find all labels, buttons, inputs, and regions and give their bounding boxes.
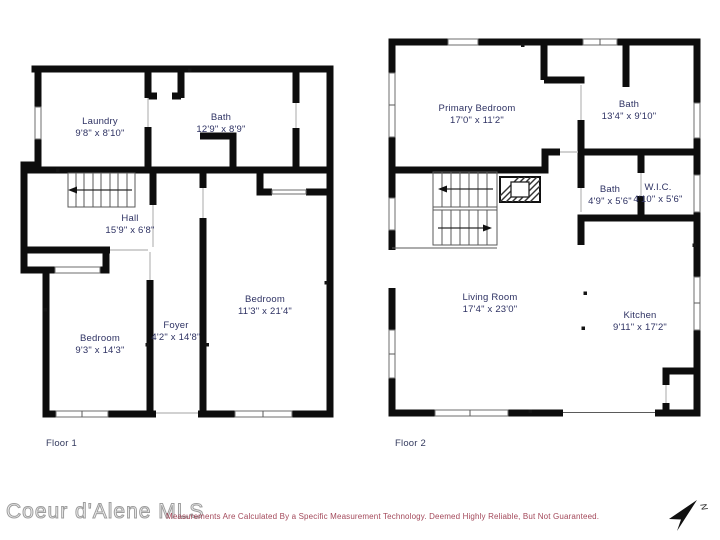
room-dims: 17'4" x 23'0" — [462, 304, 517, 316]
room-name: Bath — [196, 112, 245, 124]
floor2-plan — [389, 39, 701, 417]
room-label-primary-bedroom: Primary Bedroom 17'0" x 11'2" — [439, 103, 516, 127]
room-dims: 17'0" x 11'2" — [439, 115, 516, 127]
north-arrow-icon: N — [664, 494, 716, 538]
room-label-wic: W.I.C. 4'10" x 5'6" — [633, 182, 682, 206]
room-name: Bath — [602, 99, 657, 111]
room-dims: 4'9" x 5'6" — [588, 196, 632, 208]
floor2-door-openings — [560, 85, 666, 403]
room-dims: 9'3" x 14'3" — [75, 345, 124, 357]
measurement-disclaimer: Measurements Are Calculated By a Specifi… — [166, 512, 599, 521]
room-name: Hall — [105, 213, 154, 225]
room-label-bath-f2-small: Bath 4'9" x 5'6" — [588, 184, 632, 208]
room-label-bedroom-small: Bedroom 9'3" x 14'3" — [75, 333, 124, 357]
room-name: Living Room — [462, 292, 517, 304]
room-label-hall: Hall 15'9" x 6'8" — [105, 213, 154, 237]
room-label-bedroom-large: Bedroom 11'3" x 21'4" — [238, 294, 292, 318]
floor2-title: Floor 2 — [395, 438, 426, 449]
room-name: Bedroom — [75, 333, 124, 345]
room-label-bath-f2-large: Bath 13'4" x 9'10" — [602, 99, 657, 123]
room-dims: 15'9" x 6'8" — [105, 225, 154, 237]
floor1-title: Floor 1 — [46, 438, 77, 449]
stairs-down-arrow-icon — [68, 187, 77, 194]
room-name: Primary Bedroom — [439, 103, 516, 115]
floor1-stairs — [68, 173, 135, 207]
room-name: Bedroom — [238, 294, 292, 306]
room-label-bath-f1: Bath 12'9" x 8'9" — [196, 112, 245, 136]
room-dims: 4'10" x 5'6" — [633, 194, 682, 206]
floor2-stairs — [392, 172, 497, 248]
room-label-kitchen: Kitchen 9'11" x 17'2" — [613, 310, 667, 334]
room-name: Foyer — [151, 320, 200, 332]
room-dims: 12'9" x 8'9" — [196, 124, 245, 136]
room-name: Laundry — [75, 116, 124, 128]
room-dims: 9'11" x 17'2" — [613, 322, 667, 334]
room-label-living-room: Living Room 17'4" x 23'0" — [462, 292, 517, 316]
room-dims: 4'2" x 14'8" — [151, 332, 200, 344]
chimney — [494, 177, 555, 202]
room-label-laundry: Laundry 9'8" x 8'10" — [75, 116, 124, 140]
floor2-windows — [389, 39, 700, 416]
room-dims: 11'3" x 21'4" — [238, 306, 292, 318]
floorplan-drawing — [0, 0, 720, 540]
north-arrow-label: N — [698, 502, 710, 512]
floorplan-page: Laundry 9'8" x 8'10" Bath 12'9" x 8'9" H… — [0, 0, 720, 540]
floor1-walls — [21, 66, 334, 418]
room-label-foyer: Foyer 4'2" x 14'8" — [151, 320, 200, 344]
room-dims: 9'8" x 8'10" — [75, 128, 124, 140]
room-name: Bath — [588, 184, 632, 196]
room-dims: 13'4" x 9'10" — [602, 111, 657, 123]
floor1-plan — [21, 66, 334, 418]
room-name: W.I.C. — [633, 182, 682, 194]
floor2-walls — [389, 39, 701, 417]
floor1-windows — [35, 107, 306, 417]
room-name: Kitchen — [613, 310, 667, 322]
